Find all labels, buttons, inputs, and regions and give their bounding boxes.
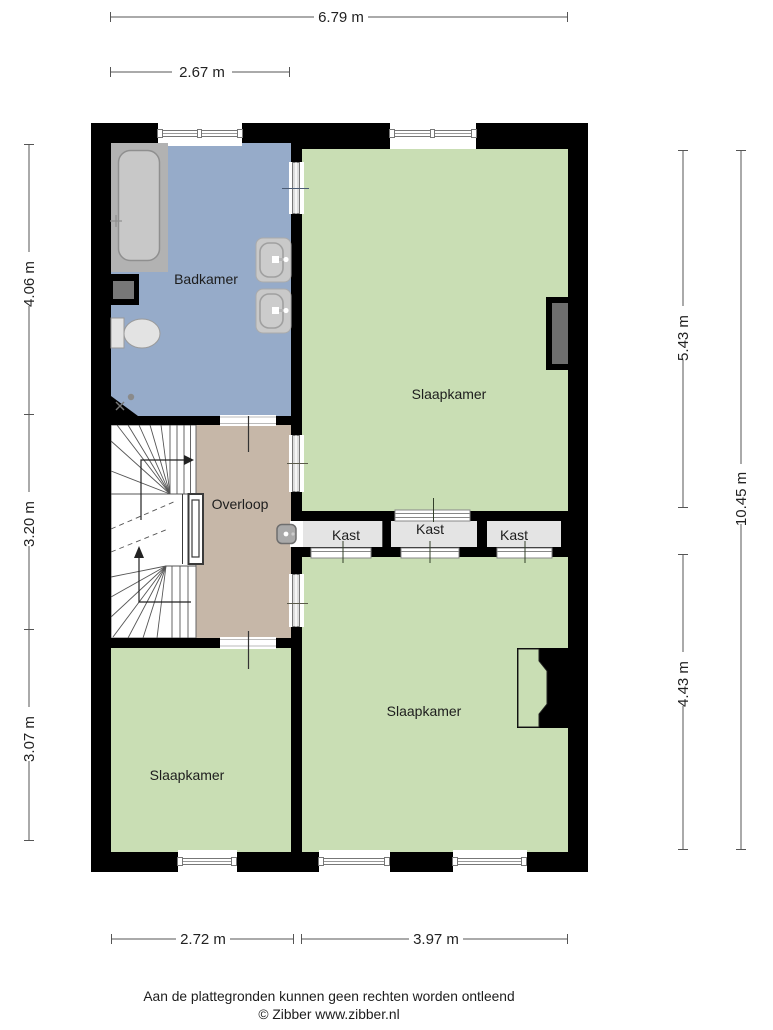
svg-text:Kast: Kast <box>500 527 528 543</box>
svg-text:3.97 m: 3.97 m <box>413 931 459 948</box>
svg-text:Kast: Kast <box>332 527 360 543</box>
svg-text:2.67 m: 2.67 m <box>179 64 225 81</box>
svg-text:4.06 m: 4.06 m <box>21 261 38 307</box>
svg-text:Slaapkamer: Slaapkamer <box>412 386 487 402</box>
svg-text:4.43 m: 4.43 m <box>675 661 692 707</box>
svg-text:Overloop: Overloop <box>212 496 269 512</box>
svg-text:10.45 m: 10.45 m <box>733 472 750 526</box>
svg-text:Aan de plattegronden kunnen ge: Aan de plattegronden kunnen geen rechten… <box>143 989 514 1004</box>
svg-text:Badkamer: Badkamer <box>174 271 238 287</box>
svg-text:3.20 m: 3.20 m <box>21 501 38 547</box>
svg-text:6.79 m: 6.79 m <box>318 9 364 26</box>
svg-text:Slaapkamer: Slaapkamer <box>387 703 462 719</box>
svg-text:Kast: Kast <box>416 521 444 537</box>
svg-text:5.43 m: 5.43 m <box>675 315 692 361</box>
svg-text:© Zibber www.zibber.nl: © Zibber www.zibber.nl <box>258 1007 399 1022</box>
svg-text:2.72 m: 2.72 m <box>180 931 226 948</box>
svg-text:3.07 m: 3.07 m <box>21 716 38 762</box>
svg-text:Slaapkamer: Slaapkamer <box>150 767 225 783</box>
